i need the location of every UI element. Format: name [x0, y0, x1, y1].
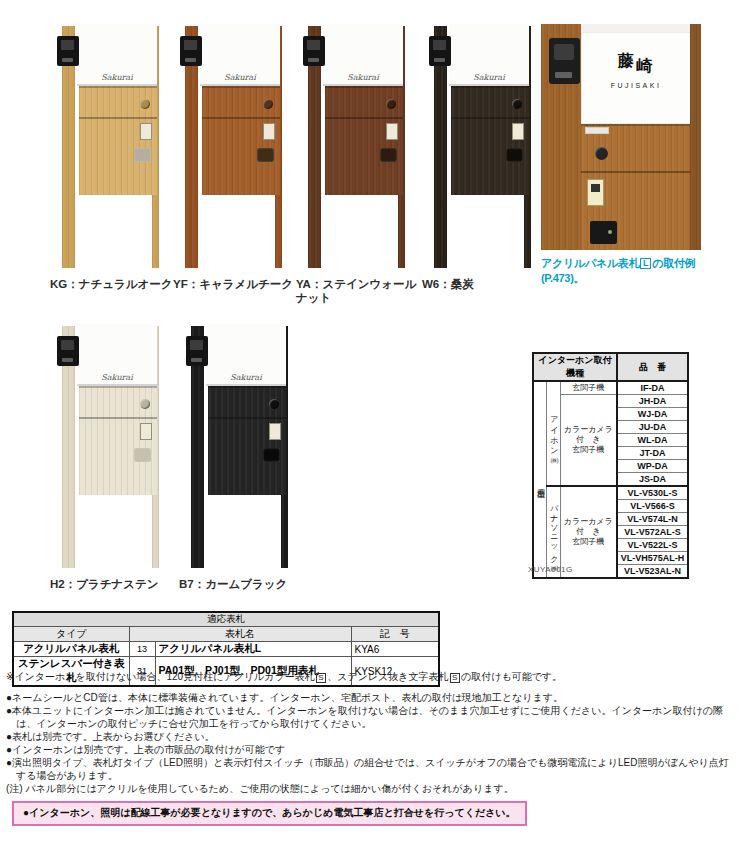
acrylic-panel: Sakurai — [323, 24, 403, 86]
name-seal-label — [585, 127, 609, 134]
model-cell: VL-V574L-N — [617, 513, 688, 526]
acrylic-nameplate-panel: 藤崎 FUJISAKI — [581, 32, 691, 124]
nameplate-kanji: 藤崎 — [582, 51, 690, 72]
wood-panel — [325, 86, 403, 195]
maker-cell-aiphone: アイホン㈱ — [546, 381, 560, 486]
product-color-label: B7：カームブラック — [179, 577, 303, 591]
table-code: XUYA001G — [528, 565, 573, 574]
product-color-label: W6：桑炭 — [422, 277, 546, 291]
signature-script: Sakurai — [77, 73, 157, 82]
signature-script: Sakurai — [449, 73, 529, 82]
lock-unit — [257, 148, 274, 162]
example-caption: アクリルパネル表札Lの取付例 (P.473)。 — [541, 256, 701, 286]
warning-box: ●インターホン、照明は配線工事が必要となりますので、あらかじめ電気工事店と打合せ… — [12, 801, 527, 826]
model-cell: VL-V522L-S — [617, 539, 688, 552]
code-cell: KYA6 — [351, 642, 439, 657]
product-photo-yf: Sakurai YF：キャラメルチーク — [173, 24, 285, 291]
model-cell: VL-V572AL-S — [617, 526, 688, 539]
model-cell: WJ-DA — [617, 408, 688, 421]
model-cell: VL-V523AL-N — [617, 565, 688, 579]
product-photo-ya: Sakurai YA：ステインウォールナット — [296, 24, 408, 306]
caution-sticker — [512, 123, 524, 140]
note-bullet: ●本体ユニットにインターホン加工は施されていません。インターホンを取付けない場合… — [6, 704, 737, 730]
signature-script: Sakurai — [200, 73, 280, 82]
door-knob — [269, 399, 279, 409]
example-image: 藤崎 FUJISAKI — [541, 24, 701, 250]
catalog-page-body: { "colors_css": "--accent:#00a0cc;--warn… — [0, 0, 740, 841]
acrylic-panel: Sakurai — [449, 24, 529, 86]
name-cell: アクリルパネル表札L — [155, 642, 351, 657]
lock-unit — [263, 448, 280, 462]
catalog-page: Sakurai KG：ナチュラルオーク Sakurai YF：キャラメルチーク — [0, 0, 740, 841]
product-photo-kg: Sakurai KG：ナチュラルオーク — [50, 24, 162, 291]
col-header-name: 表札名 — [129, 627, 351, 642]
panel-groove — [79, 117, 157, 119]
door-knob — [512, 99, 522, 109]
notes-section: ※インターホンを取付けない場合、120見付柱にアクリルカラー表札S、ステンレス抜… — [6, 670, 737, 826]
wood-panel — [451, 86, 529, 195]
panel-groove — [202, 117, 280, 119]
product-image: Sakurai — [50, 324, 162, 570]
boxed-l-mark: L — [640, 258, 651, 269]
boxed-s-mark: S — [450, 673, 460, 683]
nameplate-example-photo: 藤崎 FUJISAKI アクリルパネル表札Lの取付例 (P.473)。 — [541, 24, 701, 286]
product-image: Sakurai — [296, 24, 408, 270]
product-image: Sakurai — [50, 24, 162, 270]
product-color-label: YA：ステインウォールナット — [296, 277, 420, 306]
intercom-table-title-cell: インターホン取付機種 — [533, 353, 617, 381]
nameplate-table-title-cell: 適応表札 — [13, 612, 439, 627]
type-cell: アクリルパネル表札 — [13, 642, 129, 657]
intercom-unit — [180, 36, 202, 66]
acrylic-panel: Sakurai — [200, 24, 280, 86]
device-type-cell: 玄関子機 — [560, 381, 617, 395]
product-image: Sakurai — [422, 24, 534, 270]
wood-panel — [79, 86, 157, 195]
note-bullet: ●インターホンは別売です。上表の市販品の取付けが可能です — [6, 743, 737, 756]
door-knob — [263, 99, 273, 109]
acrylic-panel: Sakurai — [77, 24, 157, 86]
intercom-model-table: インターホン取付機種 品 番 露出型 アイホン㈱ 玄関子機 IF-DA カラーカ… — [532, 352, 689, 579]
caution-sticker — [269, 423, 281, 440]
nameplate-roman: FUJISAKI — [582, 82, 690, 89]
wood-panel — [202, 86, 280, 195]
caution-sticker — [140, 123, 152, 140]
panel-groove — [581, 171, 691, 173]
model-cell: JS-DA — [617, 473, 688, 487]
model-cell: VL-V566-S — [617, 500, 688, 513]
panel-groove — [451, 117, 529, 119]
acrylic-panel: Sakurai — [206, 324, 286, 386]
caution-sticker — [263, 123, 275, 140]
part-no-header-cell: 品 番 — [617, 353, 688, 381]
boxed-s-mark: S — [316, 673, 326, 683]
mount-type-cell: 露出型 — [533, 381, 546, 578]
col-header-type: タイプ — [13, 627, 129, 642]
panel-groove — [208, 417, 286, 419]
right-post — [690, 24, 701, 250]
intercom-unit — [57, 36, 79, 66]
device-type-cell: カラーカメラ 付 き 玄関子機 — [560, 395, 617, 487]
model-cell: JU-DA — [617, 421, 688, 434]
intercom-unit — [303, 36, 325, 66]
note-bullet: ●演出照明タイプ、表札灯タイプ（LED照明）と表示灯付スイッチ（市販品）の組合せ… — [6, 756, 737, 782]
product-photo-h2: Sakurai H2：プラチナステン — [50, 324, 162, 591]
product-photo-b7: Sakurai B7：カームブラック — [179, 324, 291, 591]
product-image: Sakurai — [173, 24, 285, 270]
signature-script: Sakurai — [206, 373, 286, 382]
model-cell: VL-VH575AL-H — [617, 552, 688, 565]
note-asterisk: ※インターホンを取付けない場合、120見付柱にアクリルカラー表札S、ステンレス抜… — [6, 670, 737, 683]
intercom-unit — [549, 38, 580, 84]
lock-unit — [590, 221, 617, 244]
product-color-label: YF：キャラメルチーク — [173, 277, 297, 291]
wood-panel — [581, 124, 691, 250]
wood-panel — [208, 386, 286, 495]
caution-sticker — [140, 423, 152, 440]
lock-unit — [134, 448, 151, 462]
model-cell: IF-DA — [617, 381, 688, 395]
table-row: アクリルパネル表札 13 アクリルパネル表札L KYA6 — [13, 642, 439, 657]
signature-script: Sakurai — [77, 373, 157, 382]
model-cell: VL-V530L-S — [617, 486, 688, 500]
wood-panel — [79, 386, 157, 495]
panel-groove — [325, 117, 403, 119]
door-knob — [595, 147, 608, 160]
panel-groove — [79, 417, 157, 419]
caution-sticker — [587, 179, 604, 206]
model-cell: JT-DA — [617, 447, 688, 460]
product-photo-w6: Sakurai W6：桑炭 — [422, 24, 534, 291]
intercom-unit — [429, 36, 451, 66]
door-knob — [386, 99, 396, 109]
lock-unit — [380, 148, 397, 162]
door-knob — [140, 399, 150, 409]
product-color-label: KG：ナチュラルオーク — [50, 277, 174, 291]
lock-unit — [506, 148, 523, 162]
door-knob — [140, 99, 150, 109]
page-cell: 13 — [129, 642, 155, 657]
note-bullet: ●ネームシールとCD管は、本体に標準装備されています。インターホン、宅配ポスト、… — [6, 691, 737, 704]
signature-script: Sakurai — [323, 73, 403, 82]
note-bullet: ●表札は別売です。上表からお選びください。 — [6, 730, 737, 743]
product-image: Sakurai — [179, 324, 291, 570]
model-cell: WP-DA — [617, 460, 688, 473]
caution-sticker — [386, 123, 398, 140]
note-caution: (注) パネル部分にはアクリルを使用しているため、ご使用の状態によっては細かい傷… — [6, 782, 737, 795]
product-color-label: H2：プラチナステン — [50, 577, 174, 591]
model-cell: WL-DA — [617, 434, 688, 447]
intercom-unit — [186, 336, 208, 366]
col-header-code: 記 号 — [351, 627, 439, 642]
model-cell: JH-DA — [617, 395, 688, 408]
acrylic-panel: Sakurai — [77, 324, 157, 386]
lock-unit — [134, 148, 151, 162]
intercom-unit — [57, 336, 79, 366]
